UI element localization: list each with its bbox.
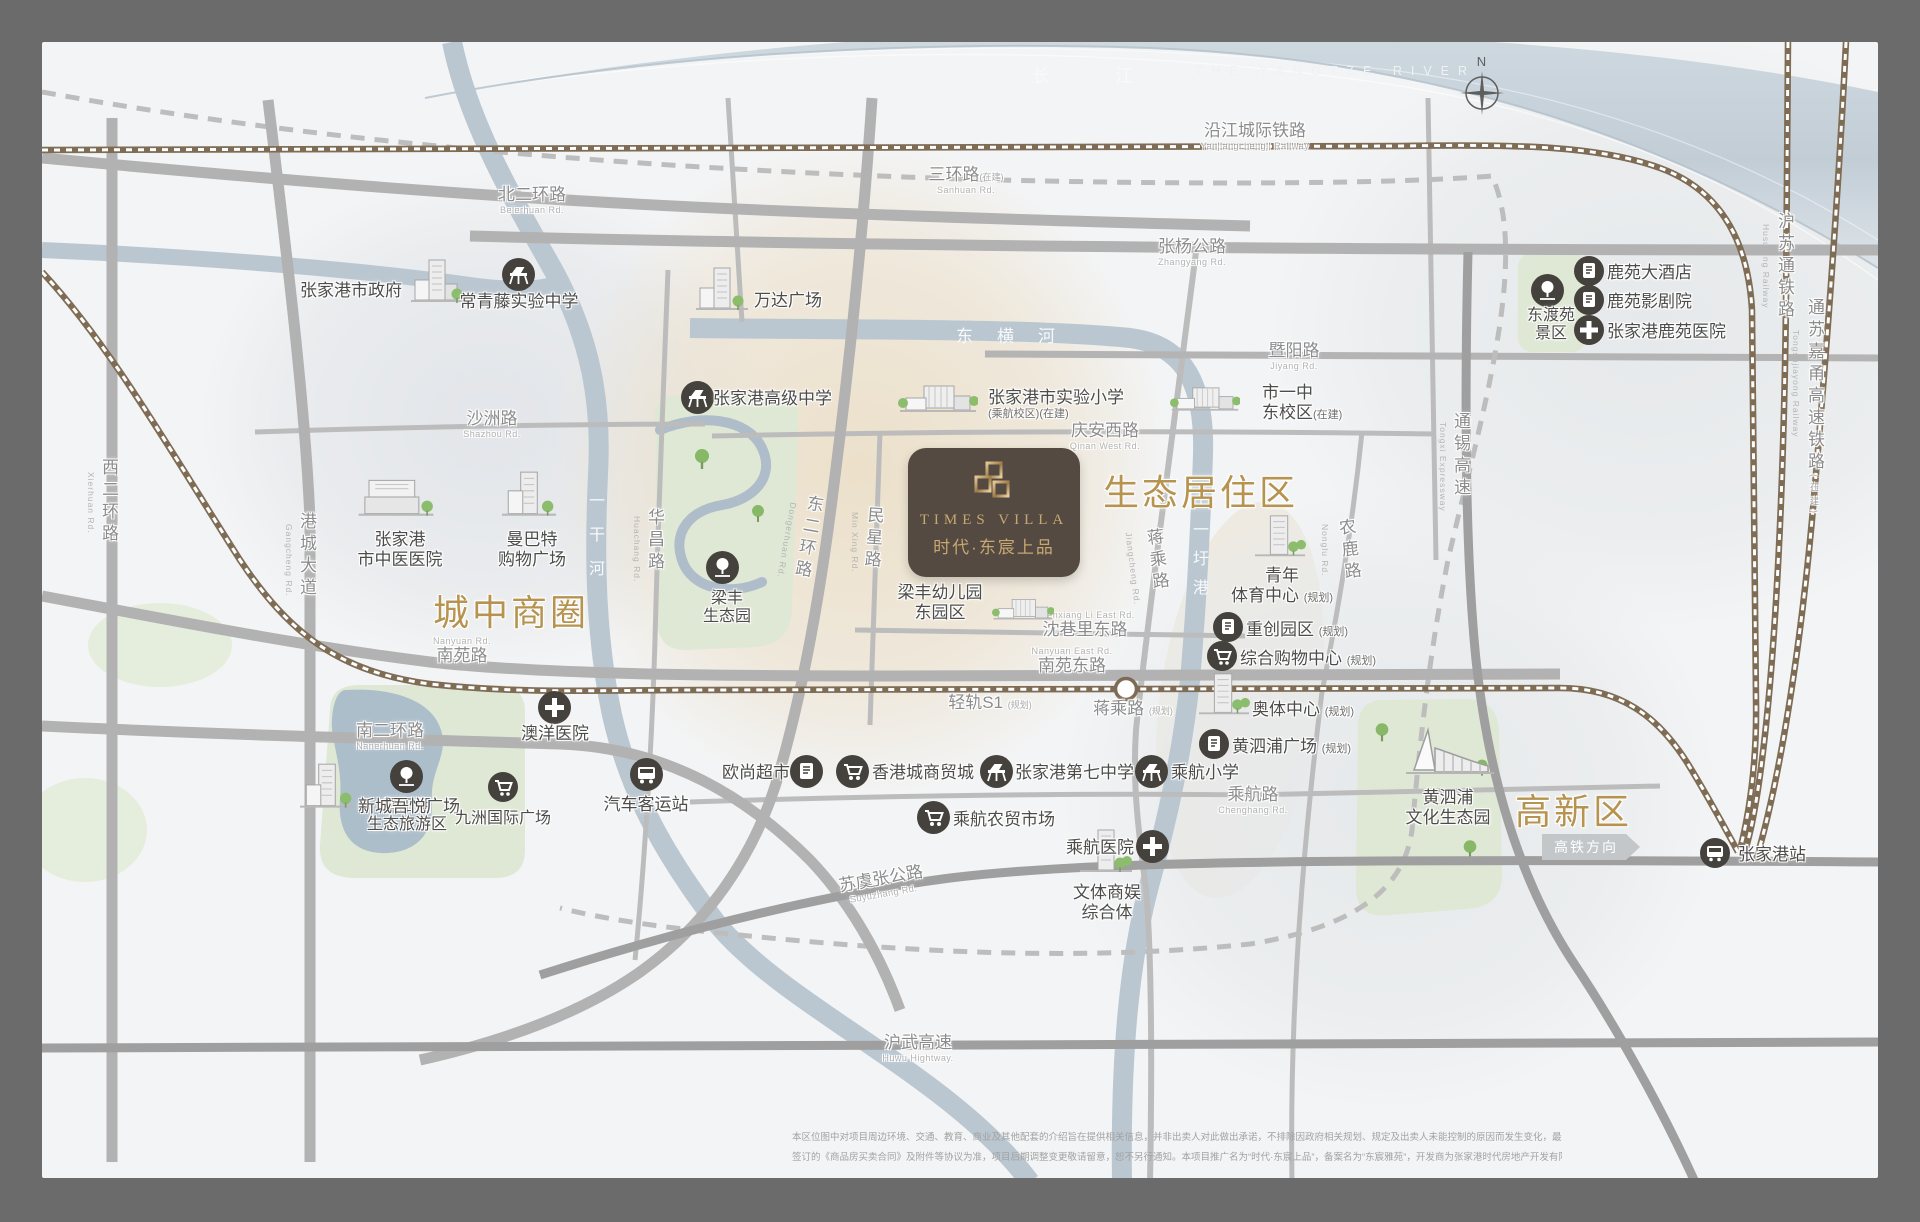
poi-chenghang-primary-label: 乘航小学 xyxy=(1171,763,1239,783)
road-beierhuan-label: 北二环路Beierhuan Rd. xyxy=(498,186,566,216)
poi-luyuan-hospital-label: 张家港鹿苑医院 xyxy=(1607,322,1726,342)
road-chenghang-label: 乘航路Chenghang Rd. xyxy=(1218,786,1288,816)
disclaimer: 本区位图中对项目周边环境、交通、教育、商业及其他配套的介绍旨在提供相关信息，并非… xyxy=(792,1128,1562,1168)
document-icon xyxy=(1213,612,1243,642)
school-icon xyxy=(980,755,1013,788)
road-jiyang-label: 暨阳路Jiyang Rd. xyxy=(1269,342,1320,372)
gov-building xyxy=(408,256,466,315)
yangtze-en-label: THE YANGTZE RIVER xyxy=(1195,64,1476,78)
school-icon xyxy=(1135,755,1168,788)
road-gangcheng-label: 港城大道 xyxy=(298,512,315,600)
road-zhangyang-label: 张杨公路Zhangyang Rd. xyxy=(1158,238,1226,268)
wuyue-building xyxy=(298,758,356,823)
times-villa-monogram-icon xyxy=(971,460,1017,506)
jiyang-road xyxy=(985,354,1878,358)
poi-bus-terminal-label: 汽车客运站 xyxy=(604,795,689,815)
poi-auchan-label: 欧尚超市 xyxy=(722,763,790,783)
poi-jiuzhou-plaza-label: 九洲国际广场 xyxy=(455,810,551,828)
road-tongxi-label: 通锡高速 xyxy=(1452,412,1469,500)
road-huachang-label: 华昌路 xyxy=(646,508,663,574)
hospital-cross-icon xyxy=(1136,830,1169,863)
zone-downtown-label: 城中商圈 xyxy=(433,584,589,636)
cart-icon xyxy=(836,755,869,788)
manbate-building xyxy=(498,468,560,529)
poi-zjg-high-school-label: 张家港高级中学 xyxy=(713,389,832,409)
aoti-building xyxy=(1194,670,1254,727)
poi-huangsipu-park-label: 黄泗浦文化生态园 xyxy=(1406,788,1491,827)
no1-middle-building xyxy=(1170,380,1240,427)
document-icon xyxy=(790,755,823,788)
poi-aoti-label: 奥体中心 (规划) xyxy=(1252,700,1354,720)
road-xierhuan-en-label: Xierhuan Rd. xyxy=(86,472,96,534)
poi-hk-city-mall-label: 香港城商贸城 xyxy=(872,763,974,783)
zone-eco-residential-label: 生态居住区 xyxy=(1103,464,1298,516)
yiganhe-label: 一干河 xyxy=(582,492,606,594)
arrow-tip-icon xyxy=(1626,834,1640,860)
disclaimer-line1: 本区位图中对项目周边环境、交通、教育、商业及其他配套的介绍旨在提供相关信息，并非… xyxy=(792,1128,1562,1148)
poi-huangsipu-plaza-label: 黄泗浦广场 (规划) xyxy=(1232,737,1351,757)
yanjiang-railway-label: 沿江城际铁路Yanjiangchengji Railway xyxy=(1201,122,1309,152)
hsr-direction-label: 高铁方向 xyxy=(1542,834,1626,860)
husutong-railway-label: 沪苏通铁路 xyxy=(1776,212,1793,322)
tree-icon xyxy=(1531,274,1564,307)
poi-liangfeng-park-label: 梁丰生态园 xyxy=(703,590,751,627)
donghenghe-label: 东横河 xyxy=(956,322,1079,347)
road-huwu-label: 沪武高速Huwu Hightway. xyxy=(882,1034,953,1064)
poi-gov-label: 张家港市政府 xyxy=(300,281,402,301)
yangtze-cn-label: 长 江 xyxy=(1032,62,1163,88)
project-logo-en: TIMES VILLA xyxy=(920,512,1068,529)
cart-icon xyxy=(1207,641,1237,671)
road-nanyuan-east-label: Nanyuan East Rd.南苑东路 xyxy=(1031,646,1112,676)
cart-icon xyxy=(488,772,518,802)
cart-icon xyxy=(917,801,950,834)
document-icon xyxy=(1199,729,1229,759)
road-nanerhuan-label: 南二环路Nanerhuan Rd. xyxy=(356,722,424,752)
poi-manbate-label: 曼巴特购物广场 xyxy=(498,530,566,569)
hsr-direction-arrow: 高铁方向 xyxy=(1542,834,1640,860)
kindergarten-building xyxy=(992,588,1054,639)
poi-chenghang-market-label: 乘航农贸市场 xyxy=(953,810,1055,830)
poi-wanda-label: 万达广场 xyxy=(754,291,822,311)
hospital-cross-icon xyxy=(538,691,571,724)
poi-tcm-hospital-label: 张家港市中医医院 xyxy=(358,530,443,569)
husutong-railway-en-label: Husutong Railway xyxy=(1761,224,1771,309)
poi-ivy-school-label: 常青藤实验中学 xyxy=(460,292,579,312)
poi-wenti-complex-label: 文体商娱综合体 xyxy=(1073,883,1141,922)
school-icon xyxy=(502,258,535,291)
poi-no1-middle-label: 市一中 东校区(在建) xyxy=(1262,383,1342,422)
road-minxing-en-label: Min Xing Rd. xyxy=(850,512,860,573)
poi-chenghang-hospital-label: 乘航医院 xyxy=(1066,838,1134,858)
poi-no7-middle-label: 张家港第七中学 xyxy=(1015,763,1134,783)
road-nanyuan-label: Nanyuan Rd.南苑路 xyxy=(433,636,491,666)
road-tongxi-en-label: Tongxi Expressway xyxy=(1438,422,1448,512)
location-map-poster: N 长 江 THE YANGTZE RIVER 东横河 一干河 十一圩港 沿江城… xyxy=(0,0,1920,1222)
youth-sports-building xyxy=(1250,512,1310,569)
hospital-cross-icon xyxy=(1574,315,1604,345)
project-logo: TIMES VILLA 时代·东宸上品 xyxy=(908,448,1080,577)
poi-composite-mall-label: 综合购物中心 (规划) xyxy=(1240,649,1376,669)
poi-aoyang-hospital-label: 澳洋医院 xyxy=(521,724,589,744)
road-sanhuan-label: 三环路(在建)Sanhuan Rd. xyxy=(929,166,1004,196)
poi-zjg-station-label: 张家港站 xyxy=(1738,845,1806,865)
tcm-hospital-building xyxy=(354,470,438,529)
tree-icon xyxy=(390,760,423,793)
road-minxing-label: 民星路 xyxy=(862,505,884,572)
poi-luyuan-hotel-label: 鹿苑大酒店 xyxy=(1607,263,1692,283)
poi-youth-sports-label: 青年 体育中心 (规划) xyxy=(1231,566,1333,605)
poi-luyuan-theater-label: 鹿苑影剧院 xyxy=(1607,292,1692,312)
poi-experimental-primary-label: 张家港市实验小学 (乘航校区)(在建) xyxy=(988,388,1124,420)
light-rail-s1-label: 轻轨S1 (规划) xyxy=(948,694,1032,713)
bus-icon xyxy=(630,758,663,791)
poi-kindergarten-label: 梁丰幼儿园东园区 xyxy=(898,583,983,622)
disclaimer-line2: 签订的《商品房买卖合同》及附件等协议为准，项目后期调整变更敬请留意，恕不另行通知… xyxy=(792,1148,1562,1168)
zone-hightech-label: 高新区 xyxy=(1515,783,1632,835)
light-rail-station-marker xyxy=(1116,679,1137,700)
document-icon xyxy=(1574,256,1604,286)
road-gangcheng-en-label: Gangcheng Rd. xyxy=(284,524,294,597)
tongsujiayong-railway-label: 通苏嘉甬高速铁路(在建) xyxy=(1806,298,1823,518)
project-logo-cn: 时代·东宸上品 xyxy=(933,533,1055,558)
experimental-primary-building xyxy=(898,380,978,427)
road-qinan-west-label: 庆安西路Qinan West Rd. xyxy=(1070,422,1140,452)
poi-dongduyuan-label: 东渡苑景区 xyxy=(1527,307,1575,344)
poi-wuyue-plaza-label: 新城吾悦广场 xyxy=(358,797,460,817)
tongsujiayong-railway-en-label: Tongsujiayong Railway xyxy=(1791,330,1801,437)
road-xierhuan-label: 西二环路 xyxy=(100,458,117,546)
jiangcheng-station-label: 蒋乘路 (规划) xyxy=(1093,700,1173,719)
wanda-building xyxy=(694,264,750,323)
poi-zhongchuang-label: 重创园区 (规划) xyxy=(1246,620,1348,640)
school-icon xyxy=(681,381,714,414)
tree-icon xyxy=(706,551,739,584)
road-huachang-en-label: Huachang Rd. xyxy=(632,516,642,582)
train-station-icon xyxy=(1700,838,1730,868)
road-shazhou-label: 沙洲路Shazhou Rd. xyxy=(463,410,521,440)
document-icon xyxy=(1574,285,1604,315)
